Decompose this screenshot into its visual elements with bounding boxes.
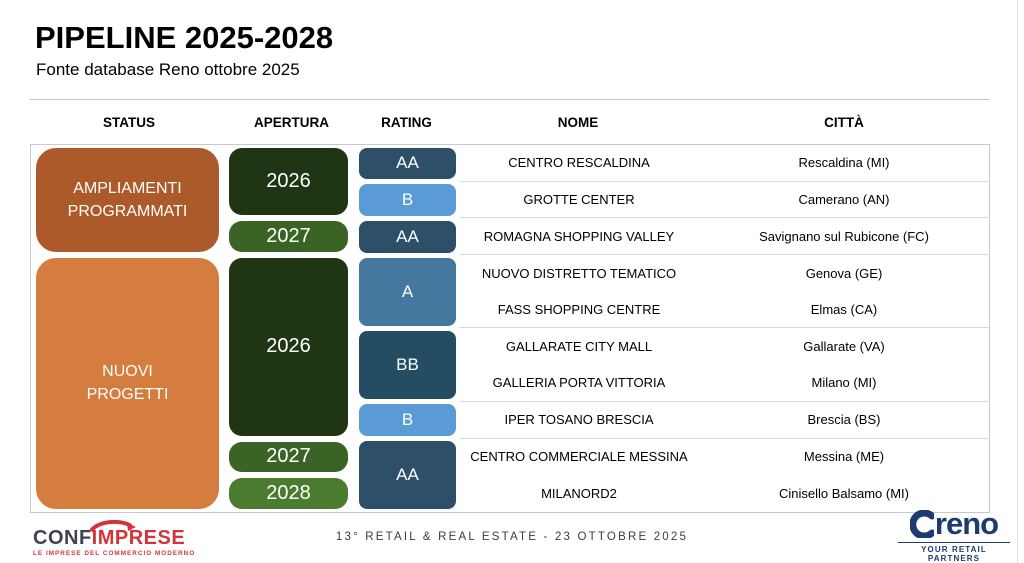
citta-cell: Savignano sul Rubicone (FC) xyxy=(699,218,989,255)
event-footer-text: 13° RETAIL & REAL ESTATE - 23 OTTOBRE 20… xyxy=(0,531,1024,543)
page-subtitle: Fonte database Reno ottobre 2025 xyxy=(36,60,300,80)
nome-cell: FASS SHOPPING CENTRE xyxy=(459,292,699,329)
citta-cell: Milano (MI) xyxy=(699,365,989,402)
col-header-rating: RATING xyxy=(355,115,458,130)
apertura-block: 2028 xyxy=(229,478,348,509)
rating-chip: BB xyxy=(359,331,456,399)
col-header-nome: NOME xyxy=(458,115,698,130)
nome-cell: IPER TOSANO BRESCIA xyxy=(459,402,699,439)
rating-chip: AA xyxy=(359,441,456,509)
nome-cell: CENTRO COMMERCIALE MESSINA xyxy=(459,439,699,476)
page-title: PIPELINE 2025-2028 xyxy=(35,20,333,56)
nome-cell: GROTTE CENTER xyxy=(459,182,699,219)
nome-cell: ROMAGNA SHOPPING VALLEY xyxy=(459,218,699,255)
reno-logo: reno YOUR RETAIL PARTNERS xyxy=(898,508,1010,563)
reno-crescent-icon xyxy=(910,510,934,538)
col-header-apertura: APERTURA xyxy=(228,115,355,130)
status-block: AMPLIAMENTI PROGRAMMATI xyxy=(36,148,219,252)
nome-cell: GALLERIA PORTA VITTORIA xyxy=(459,365,699,402)
slide: PIPELINE 2025-2028 Fonte database Reno o… xyxy=(0,0,1024,563)
rating-chip: AA xyxy=(359,221,456,253)
status-block: NUOVI PROGETTI xyxy=(36,258,219,509)
citta-cell: Camerano (AN) xyxy=(699,182,989,219)
citta-cell: Messina (ME) xyxy=(699,439,989,476)
pipeline-table: STATUS APERTURA RATING NOME CITTÀ AMPLIA… xyxy=(30,99,990,513)
rating-chip: A xyxy=(359,258,456,326)
reno-wordmark: reno xyxy=(898,508,1010,539)
slide-edge-line xyxy=(1017,0,1018,563)
citta-cell: Brescia (BS) xyxy=(699,402,989,439)
col-header-status: STATUS xyxy=(30,115,228,130)
citta-cell: Rescaldina (MI) xyxy=(699,145,989,182)
apertura-block: 2027 xyxy=(229,221,348,252)
table-header-row: STATUS APERTURA RATING NOME CITTÀ xyxy=(30,99,990,145)
citta-cell: Gallarate (VA) xyxy=(699,328,989,365)
rating-chip: B xyxy=(359,184,456,216)
citta-cell: Genova (GE) xyxy=(699,255,989,292)
table-body: AMPLIAMENTI PROGRAMMATINUOVI PROGETTI202… xyxy=(30,145,990,513)
nome-cell: MILANORD2 xyxy=(459,475,699,512)
apertura-block: 2026 xyxy=(229,148,348,215)
apertura-block: 2026 xyxy=(229,258,348,435)
nome-cell: NUOVO DISTRETTO TEMATICO xyxy=(459,255,699,292)
apertura-block: 2027 xyxy=(229,442,348,473)
rating-chip: AA xyxy=(359,148,456,180)
rating-chip: B xyxy=(359,404,456,436)
nome-cell: GALLARATE CITY MALL xyxy=(459,328,699,365)
reno-name: reno xyxy=(935,508,998,539)
col-header-citta: CITTÀ xyxy=(698,115,990,130)
confimprese-tagline: LE IMPRESE DEL COMMERCIO MODERNO xyxy=(33,550,195,557)
citta-cell: Elmas (CA) xyxy=(699,292,989,329)
reno-tagline: YOUR RETAIL PARTNERS xyxy=(898,542,1010,563)
nome-cell: CENTRO RESCALDINA xyxy=(459,145,699,182)
